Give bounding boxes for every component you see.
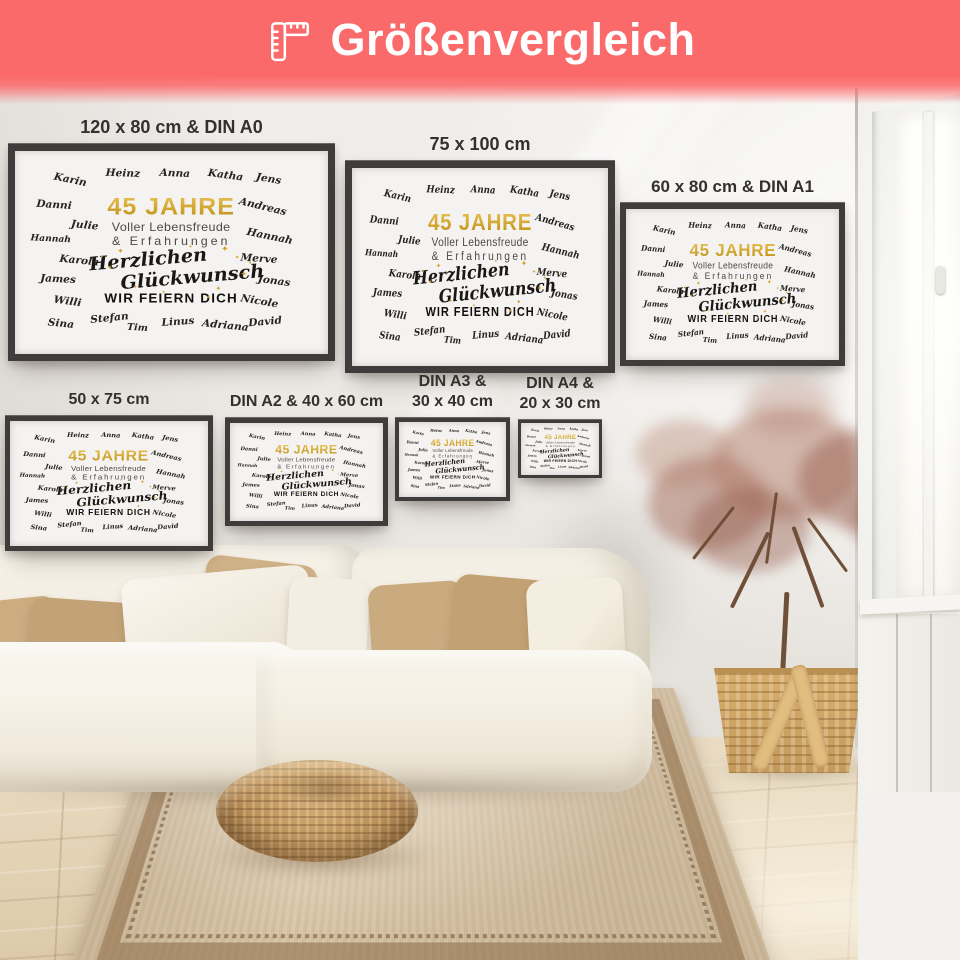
guest-name: David [785,330,809,341]
sparkle-icon: ✦ [458,456,459,458]
guest-name: Jens [581,428,588,432]
guest-name: Linus [557,465,565,469]
guest-name: Linus [449,482,461,487]
poster-print: KarinHeinzAnnaKathaJensDanniAndreasJulie… [230,423,383,521]
sparkle-icon: ✦ [543,275,546,280]
sparkle-icon: ✦ [569,460,570,462]
guest-name: Katha [509,183,539,199]
sparkle-icon: ✦ [206,294,211,300]
sparkle-icon: ✦ [474,460,476,462]
size-label-text: 120 x 80 cm & DIN A0 [80,117,262,137]
poster-design: KarinHeinzAnnaKathaJensDanniAndreasJulie… [231,425,382,519]
guest-name: Karin [249,432,266,441]
guest-name: Linus [302,502,318,509]
poster-frame-din-a4-20x30: DIN A4 & 20 x 30 cm KarinHeinzAnnaKathaJ… [518,419,602,478]
sparkle-icon: ✦ [449,473,450,475]
guest-name: David [248,314,283,329]
guest-name: Linus [103,522,124,531]
guest-name: Stefan [57,519,82,529]
guest-name: Linus [472,327,500,341]
sparkle-icon: ✦ [100,254,104,260]
poster-frame-75x100: 75 x 100 cm KarinHeinzAnnaKathaJensDanni… [345,160,615,373]
size-label: 75 x 100 cm [340,133,620,156]
sparkle-icon: ✦ [472,303,475,308]
guest-name: Sina [379,329,401,343]
size-label: DIN A4 & 20 x 30 cm [420,374,700,415]
poster-frame-60x80-din-a1: 60 x 80 cm & DIN A1 KarinHeinzAnnaKathaJ… [620,202,845,366]
guest-name: Tim [437,485,444,489]
sparkle-icon: ✦ [331,468,335,473]
sparkle-icon: ✦ [706,308,709,313]
sparkle-icon: ✦ [571,457,572,459]
guest-name: Tim [81,527,95,534]
poster-design: KarinHeinzAnnaKathaJensDanniAndreasJulie… [628,212,838,357]
poster-print: KarinHeinzAnnaKathaJensDanniAndreasJulie… [352,168,608,366]
size-label-text: 75 x 100 cm [429,134,530,154]
poster-footer: WIR FEIERN DICH [628,313,838,324]
sparkle-icon: ✦ [744,278,747,282]
sparkle-icon: ✦ [696,280,700,286]
guest-name: Adriana [202,317,250,334]
sparkle-icon: ✦ [133,284,138,290]
guest-name: Heinz [67,431,89,439]
size-label-text: 60 x 80 cm & DIN A1 [651,177,814,196]
guest-name: Katha [324,431,342,439]
sparkle-icon: ✦ [153,494,157,499]
guest-name: Tim [702,336,717,345]
radiator-cover [866,612,960,792]
guest-name: Karin [383,187,412,205]
guest-name: David [543,327,571,341]
sparkle-icon: ✦ [577,454,579,456]
guest-name: Adriana [568,466,580,470]
poster-title: 45 JAHRE [400,437,505,448]
sparkle-icon: ✦ [439,471,441,473]
poster-design: KarinHeinzAnnaKathaJensDanniAndreasJulie… [400,424,505,496]
guest-name: Sina [529,465,536,469]
sparkle-icon: ✦ [222,244,229,254]
sparkle-icon: ✦ [428,460,429,462]
poster-print: KarinHeinzAnnaKathaJensDanniAndreasJulie… [399,422,506,497]
poster-subtitle: Voller Lebensfreude [17,220,325,234]
poster-footer: WIR FEIERN DICH [231,490,382,497]
sparkle-icon: ✦ [315,468,317,471]
size-comparison-banner: Größenvergleich [0,0,960,104]
sparkle-icon: ✦ [476,466,478,469]
sparkle-icon: ✦ [726,312,729,316]
poster-subtitle: Voller Lebensfreude [231,456,382,463]
window-mullion [924,112,933,602]
poster-design: KarinHeinzAnnaKathaJensDanniAndreasJulie… [17,155,325,350]
guest-name: Katha [465,428,478,434]
sparkle-icon: ✦ [532,269,536,275]
sparkle-icon: ✦ [470,456,472,460]
sparkle-icon: ✦ [689,293,692,298]
sparkle-icon: ✦ [516,299,521,306]
guest-name: Jens [255,171,282,187]
sparkle-icon: ✦ [780,298,784,304]
sparkle-icon: ✦ [494,259,497,264]
sparkle-icon: ✦ [448,298,452,304]
guest-name: David [157,522,179,531]
guest-name: Heinz [430,428,442,433]
poster-frame-120x80-din-a0: 120 x 80 cm & DIN A0 KarinHeinzAnnaKatha… [8,143,335,361]
size-label-text: 20 x 30 cm [520,395,601,412]
sparkle-icon: ✦ [108,265,113,271]
sparkle-icon: ✦ [162,290,166,296]
guest-name: Jens [481,429,490,435]
poster-subtitle: Voller Lebensfreude [11,464,206,473]
poster-footer: WIR FEIERN DICH [400,474,505,479]
poster-title: 45 JAHRE [17,192,325,221]
guest-name: Sina [246,503,259,510]
guest-name: Heinz [426,183,455,196]
guest-name: Heinz [544,427,553,430]
poster-print: KarinHeinzAnnaKathaJensDanniAndreasJulie… [626,209,839,360]
guest-name: Katha [569,427,578,431]
sparkle-icon: ✦ [436,262,441,270]
poster-design: KarinHeinzAnnaKathaJensDanniAndreasJulie… [522,424,599,474]
sparkle-icon: ✦ [542,449,543,450]
guest-name: Anna [470,183,495,196]
sparkle-icon: ✦ [422,269,425,274]
guest-name: Linus [726,331,749,342]
sparkle-icon: ✦ [302,490,304,493]
sparkle-icon: ✦ [544,452,545,454]
sparkle-icon: ✦ [118,247,124,255]
ruler-icon [264,14,314,64]
sparkle-icon: ✦ [235,254,240,260]
sparkle-icon: ✦ [558,458,559,459]
guest-name: Tim [127,322,149,334]
sparkle-icon: ✦ [550,457,551,459]
banner-title: Größenvergleich [330,17,695,62]
guest-name: David [344,502,361,509]
guest-name: Stefan [540,464,550,468]
sparkle-icon: ✦ [464,475,466,477]
guest-name: Katha [757,221,782,233]
poster-subtitle: Voller Lebensfreude [628,260,838,270]
sparkle-icon: ✦ [767,278,772,286]
guest-name: Jens [549,187,571,203]
sparkle-icon: ✦ [428,279,432,285]
sparkle-icon: ✦ [537,284,542,292]
poster-print: KarinHeinzAnnaKathaJensDanniAndreasJulie… [521,423,599,475]
sparkle-icon: ✦ [75,480,79,485]
sparkle-icon: ✦ [521,259,527,269]
size-label-text: 50 x 75 cm [69,391,150,408]
guest-name: Stefan [425,481,439,487]
guest-name: Linus [161,315,195,329]
guest-name: Anna [557,427,565,430]
size-label: 60 x 80 cm & DIN A1 [593,176,873,198]
poster-footer: WIR FEIERN DICH [17,291,325,306]
guest-name: Sina [48,316,75,331]
guest-name: Adriana [753,332,785,344]
poster-design: KarinHeinzAnnaKathaJensDanniAndreasJulie… [354,172,606,362]
sparkle-icon: ✦ [275,478,277,481]
sparkle-icon: ✦ [756,316,759,321]
guest-name: Adriana [128,523,158,533]
radiator-seam [896,614,898,792]
guest-name: Stefan [413,323,445,338]
guest-name: Adriana [463,483,479,489]
guest-name: David [579,465,588,469]
pouf-dimple [276,768,372,802]
sparkle-icon: ✦ [434,457,436,460]
guest-name: Tim [443,335,461,346]
sparkle-icon: ✦ [572,447,574,450]
poster-subtitle: Voller Lebensfreude [400,448,505,453]
guest-name: Jens [347,432,360,440]
guest-name: David [479,482,491,487]
guest-name: Karin [412,429,424,436]
guest-name: Tim [285,506,296,512]
sparkle-icon: ✦ [241,270,247,278]
poster-frame-din-a2-40x60: DIN A2 & 40 x 60 cm KarinHeinzAnnaKathaJ… [225,417,388,526]
guest-name: Stefan [677,327,704,339]
sparkle-icon: ✦ [579,451,580,452]
sparkle-icon: ✦ [216,285,222,292]
guest-name: Jens [790,224,809,236]
sparkle-icon: ✦ [323,492,325,495]
radiator-seam [930,614,932,792]
guest-name: Anna [101,430,121,438]
poster-footer: WIR FEIERN DICH [11,507,206,516]
sparkle-icon: ✦ [547,448,549,450]
sparkle-icon: ✦ [479,463,480,465]
guest-name: Heinz [274,430,291,436]
sparkle-icon: ✦ [468,472,470,475]
product-mockup-scene: 120 x 80 cm & DIN A0 KarinHeinzAnnaKatha… [0,0,960,960]
poster-frame-din-a3-30x40: DIN A3 & 30 x 40 cm KarinHeinzAnnaKathaJ… [395,417,510,501]
sparkle-icon: ✦ [431,464,433,466]
poster-footer: WIR FEIERN DICH [522,459,599,463]
guest-name: Anna [301,430,316,437]
sparkle-icon: ✦ [328,488,331,492]
poster-title: 45 JAHRE [354,208,606,236]
rattan-pouf [216,760,418,862]
guest-name: Anna [448,428,459,433]
guest-name: Katha [207,167,244,184]
sparkle-icon: ✦ [508,308,512,314]
guest-name: Anna [724,220,745,230]
guest-name: Adriana [321,503,344,511]
sparkle-icon: ✦ [564,447,565,448]
sparkle-icon: ✦ [338,473,340,476]
poster-design: KarinHeinzAnnaKathaJensDanniAndreasJulie… [11,424,206,544]
sparkle-icon: ✦ [272,473,274,476]
sparkle-icon: ✦ [249,261,253,267]
sparkle-icon: ✦ [344,476,346,479]
guest-name: Tim [549,467,554,470]
guest-name: Heinz [688,221,712,231]
sparkle-icon: ✦ [141,478,146,484]
guest-name: Katha [132,431,155,441]
guest-name: Stefan [267,500,286,508]
guest-name: Sina [31,523,48,532]
poster-print: KarinHeinzAnnaKathaJensDanniAndreasJulie… [10,421,208,546]
poster-subtitle: Voller Lebensfreude [354,235,606,249]
sparkle-icon: ✦ [576,449,577,451]
poster-title: 45 JAHRE [231,443,382,457]
poster-print: KarinHeinzAnnaKathaJensDanniAndreasJulie… [15,151,328,354]
size-label-text: DIN A4 & [526,375,594,392]
sparkle-icon: ✦ [785,291,788,295]
sparkle-icon: ✦ [288,487,290,490]
sparkle-icon: ✦ [763,309,767,315]
sparkle-icon: ✦ [137,504,141,509]
guest-name: Sina [410,483,419,488]
poster-title: 45 JAHRE [628,240,838,261]
guest-name: Karin [652,223,676,237]
window-handle-icon [936,266,945,294]
guest-name: Sina [648,332,667,343]
guest-name: Karin [34,433,56,444]
sparkle-icon: ✦ [684,286,687,290]
sparkle-icon: ✦ [280,469,283,473]
poster-footer: WIR FEIERN DICH [354,304,606,318]
guest-name: Stefan [90,310,130,326]
guest-name: Karin [53,170,88,188]
sparkle-icon: ✦ [776,286,779,291]
guest-name: Heinz [106,167,141,180]
guest-name: Karin [530,428,539,433]
sparkle-icon: ✦ [189,244,193,250]
poster-frame-50x75: 50 x 75 cm KarinHeinzAnnaKathaJensDanniA… [5,415,213,551]
sparkle-icon: ✦ [340,481,343,485]
guest-name: Anna [160,166,191,180]
guest-name: Adriana [505,330,544,346]
poster-title: 45 JAHRE [11,446,206,464]
guest-name: Jens [162,433,179,443]
size-label: 120 x 80 cm & DIN A0 [32,116,312,139]
